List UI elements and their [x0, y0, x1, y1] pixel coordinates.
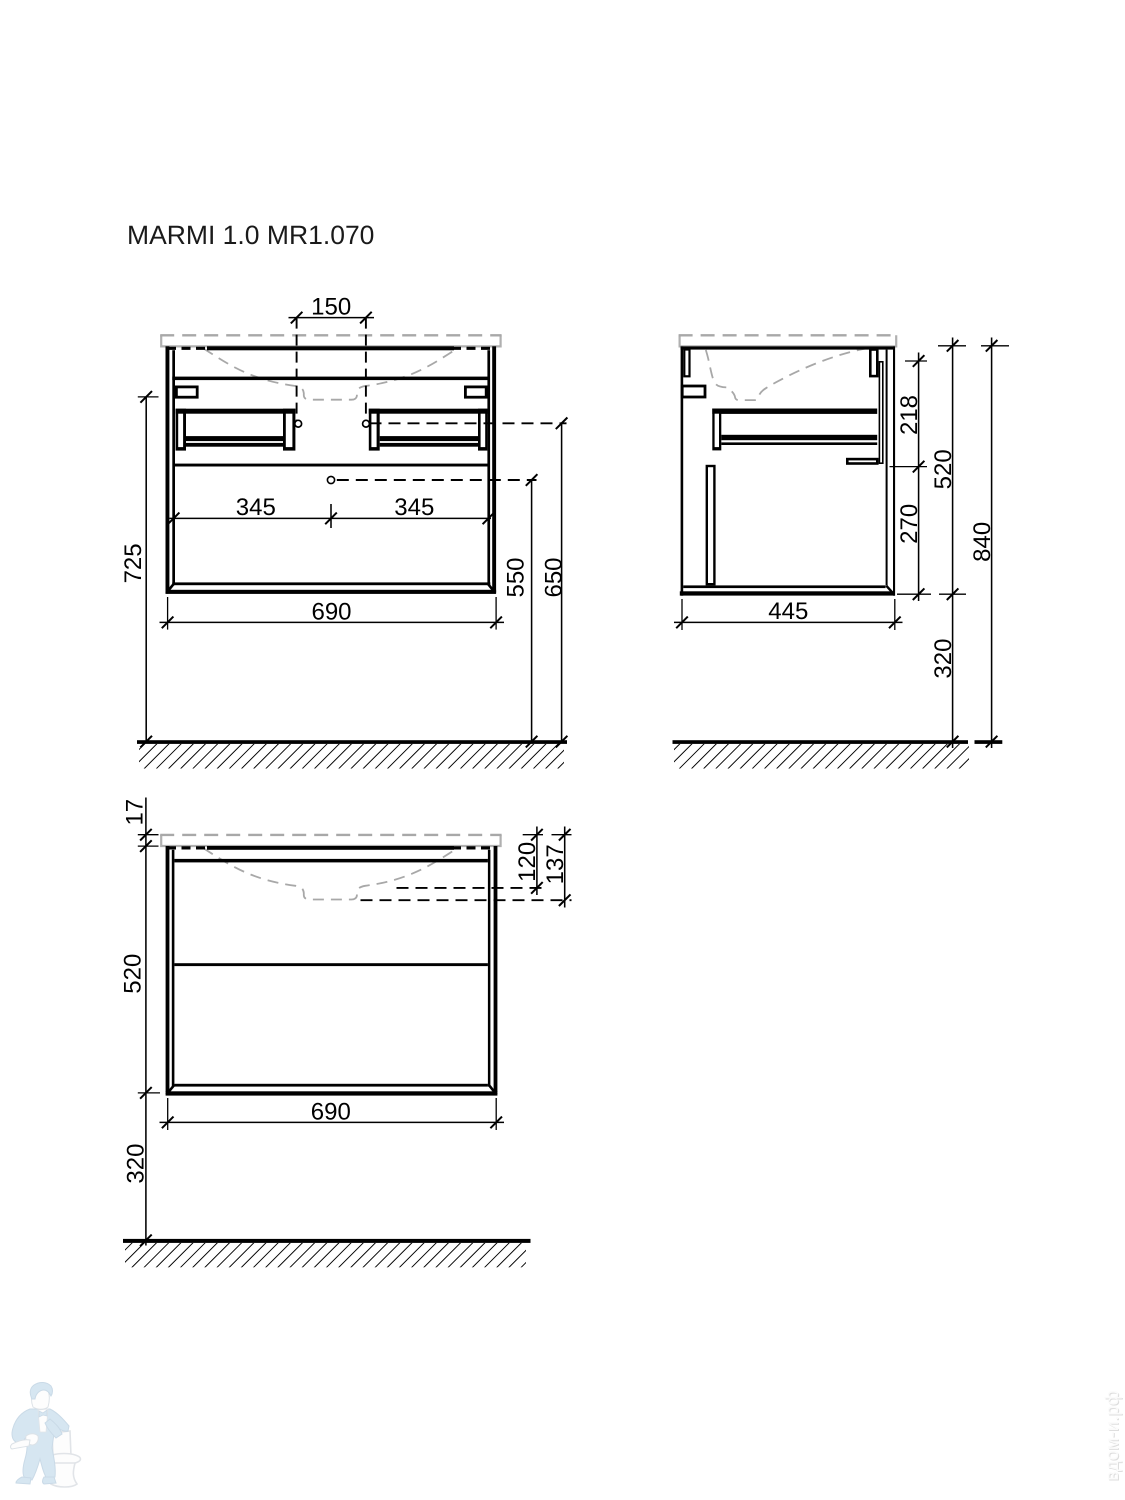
- svg-text:725: 725: [120, 543, 147, 583]
- svg-text:вдом-и.рф: вдом-и.рф: [1101, 1390, 1122, 1481]
- svg-text:520: 520: [930, 449, 957, 489]
- svg-text:650: 650: [540, 557, 567, 597]
- svg-text:150: 150: [311, 294, 351, 321]
- svg-text:520: 520: [120, 954, 147, 994]
- svg-text:137: 137: [542, 844, 569, 884]
- svg-text:690: 690: [311, 599, 351, 626]
- svg-text:17: 17: [122, 799, 149, 826]
- svg-text:320: 320: [930, 639, 957, 679]
- svg-text:690: 690: [311, 1099, 351, 1126]
- svg-text:320: 320: [123, 1144, 150, 1184]
- svg-text:445: 445: [768, 598, 808, 625]
- svg-text:840: 840: [969, 522, 996, 562]
- svg-text:120: 120: [514, 842, 541, 882]
- svg-text:MARMI 1.0 MR1.070: MARMI 1.0 MR1.070: [127, 220, 374, 250]
- svg-text:218: 218: [896, 395, 923, 435]
- svg-text:270: 270: [896, 504, 923, 544]
- svg-text:345: 345: [394, 494, 434, 521]
- svg-text:345: 345: [236, 494, 276, 521]
- svg-text:550: 550: [502, 557, 529, 597]
